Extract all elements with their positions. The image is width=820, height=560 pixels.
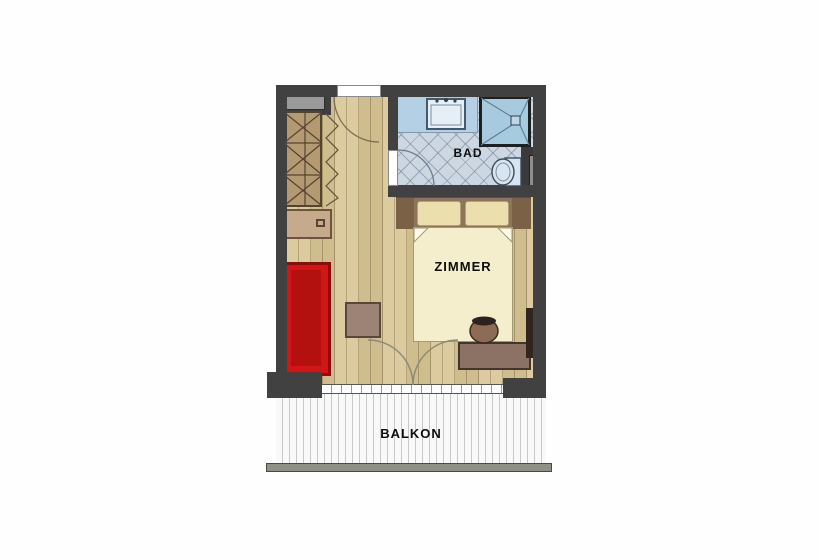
- dresser-handle: [316, 219, 325, 227]
- wall-top-right: [381, 85, 546, 97]
- nightstand-icon: [512, 198, 531, 229]
- wall-left: [276, 85, 287, 373]
- sofa-icon: [283, 262, 331, 376]
- wall-bathroom-bottom: [388, 185, 546, 197]
- entry-door-icon: [337, 85, 381, 97]
- wall-pillar-bottom-left: [267, 372, 322, 398]
- bathroom-label: BAD: [438, 146, 498, 160]
- wall-stub-bottom-right: [503, 378, 546, 398]
- wall-bathroom-vertical: [388, 97, 398, 150]
- bathroom-door-icon: [388, 150, 398, 186]
- balcony-door-threshold: [322, 384, 503, 394]
- balcony-railing: [266, 463, 552, 472]
- double-bed-icon: [413, 227, 513, 342]
- wall-niche-inner: [286, 96, 325, 110]
- side-table-icon: [345, 302, 381, 338]
- desk-icon: [458, 342, 531, 370]
- wardrobe-icon: [284, 111, 322, 207]
- pillow-icon: [465, 201, 509, 226]
- balcony-label: BALKON: [331, 426, 491, 441]
- sofa-cushion: [291, 270, 321, 366]
- room-label: ZIMMER: [413, 259, 513, 274]
- pillow-icon: [417, 201, 461, 226]
- wall-right: [533, 85, 546, 398]
- shower-icon: [479, 96, 531, 147]
- sink-icon: [426, 98, 466, 130]
- floor-plan: BAD ZIMMER BALKON: [0, 0, 820, 560]
- nightstand-icon: [396, 198, 414, 229]
